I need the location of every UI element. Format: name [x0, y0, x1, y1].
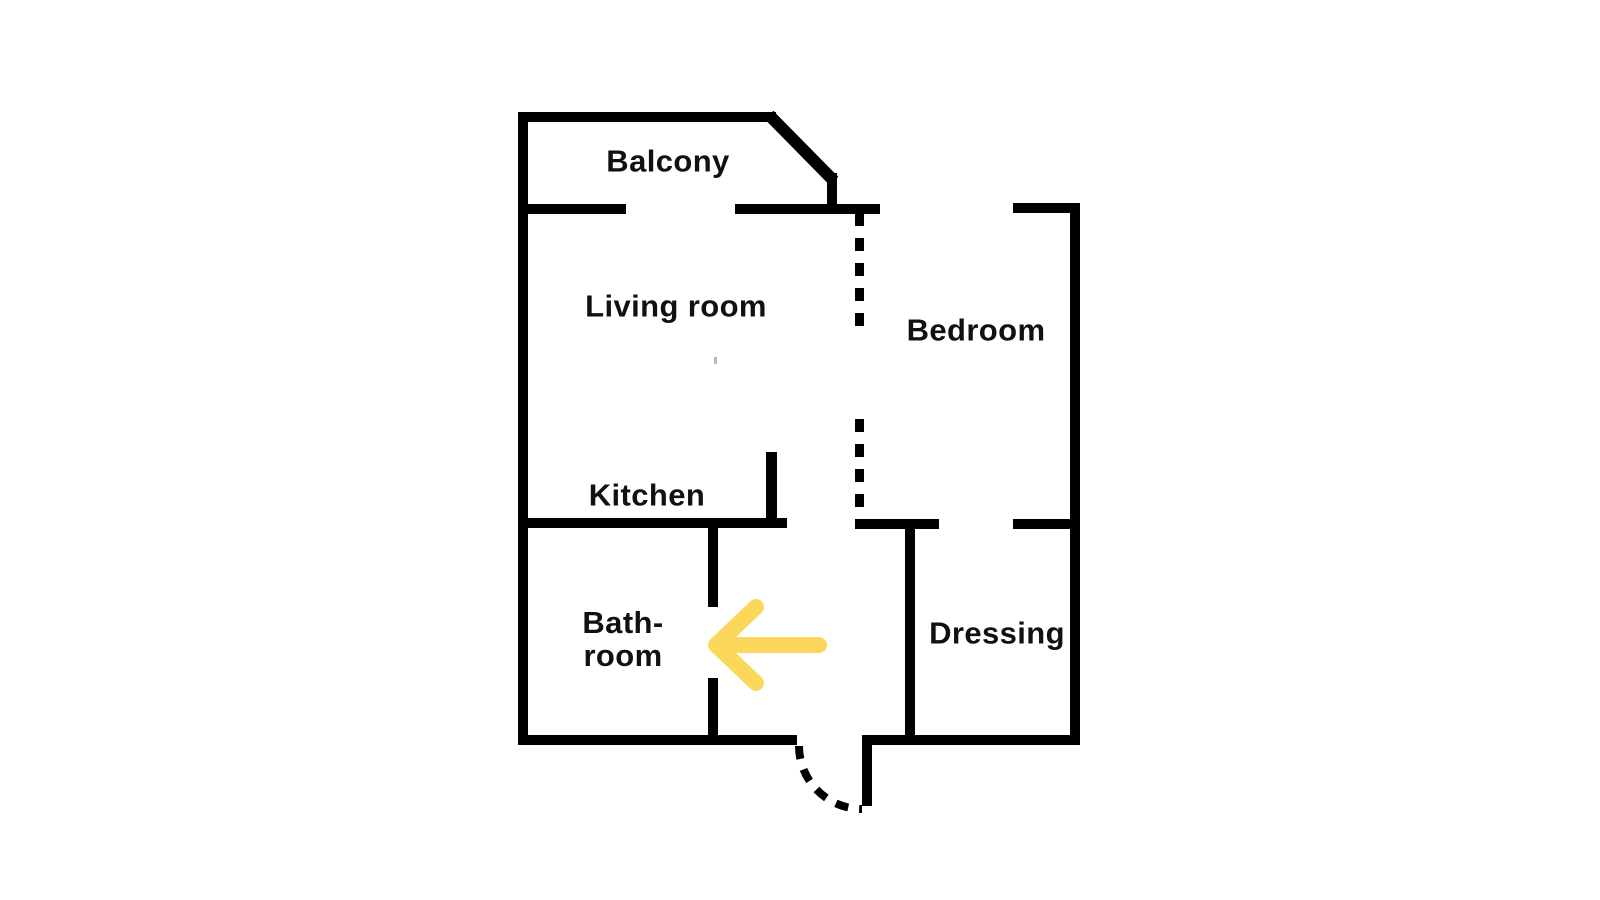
room-label-bedroom: Bedroom — [907, 314, 1046, 347]
room-label-balcony: Balcony — [606, 145, 729, 178]
floor-plan: Balcony Living room Bedroom Kitchen Bath… — [0, 0, 1600, 900]
direction-arrow-left — [716, 607, 819, 683]
room-label-living-room: Living room — [585, 290, 767, 323]
wall-balcony-diagonal — [769, 115, 834, 181]
room-label-bathroom-line2: room — [582, 639, 663, 672]
door-swing-arc — [799, 746, 862, 809]
room-label-dressing: Dressing — [929, 617, 1065, 650]
room-label-bathroom-line1: Bath- — [582, 606, 663, 639]
room-label-bathroom: Bath- room — [582, 606, 663, 672]
plan-linework — [0, 0, 1600, 900]
room-label-kitchen: Kitchen — [589, 479, 705, 512]
